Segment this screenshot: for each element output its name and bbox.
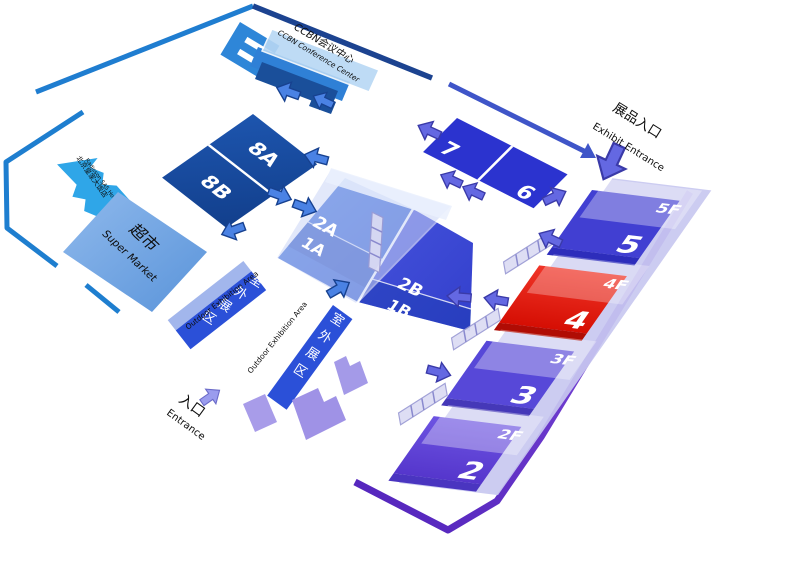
conference-center-block[interactable]: CCBN会议中心 CCBN Conference Center (220, 21, 379, 114)
venue-map: 北京皇家大饭店 Radisson SAS Hotel 超市 Super Mark… (0, 0, 797, 581)
border-top-left (36, 6, 253, 92)
flow-arrow-icon (425, 359, 453, 385)
venue-map-canvas: 北京皇家大饭店 Radisson SAS Hotel 超市 Super Mark… (0, 0, 797, 581)
flow-arrow-icon (482, 288, 509, 312)
border-left-lower (86, 285, 119, 312)
hall-8a-8b-area[interactable] (162, 114, 317, 228)
building-wedge-3 (243, 394, 277, 432)
building-wedge-2 (292, 388, 346, 440)
building-wedge-1 (334, 356, 368, 395)
hall-8-block: 8A 8B (162, 114, 317, 228)
